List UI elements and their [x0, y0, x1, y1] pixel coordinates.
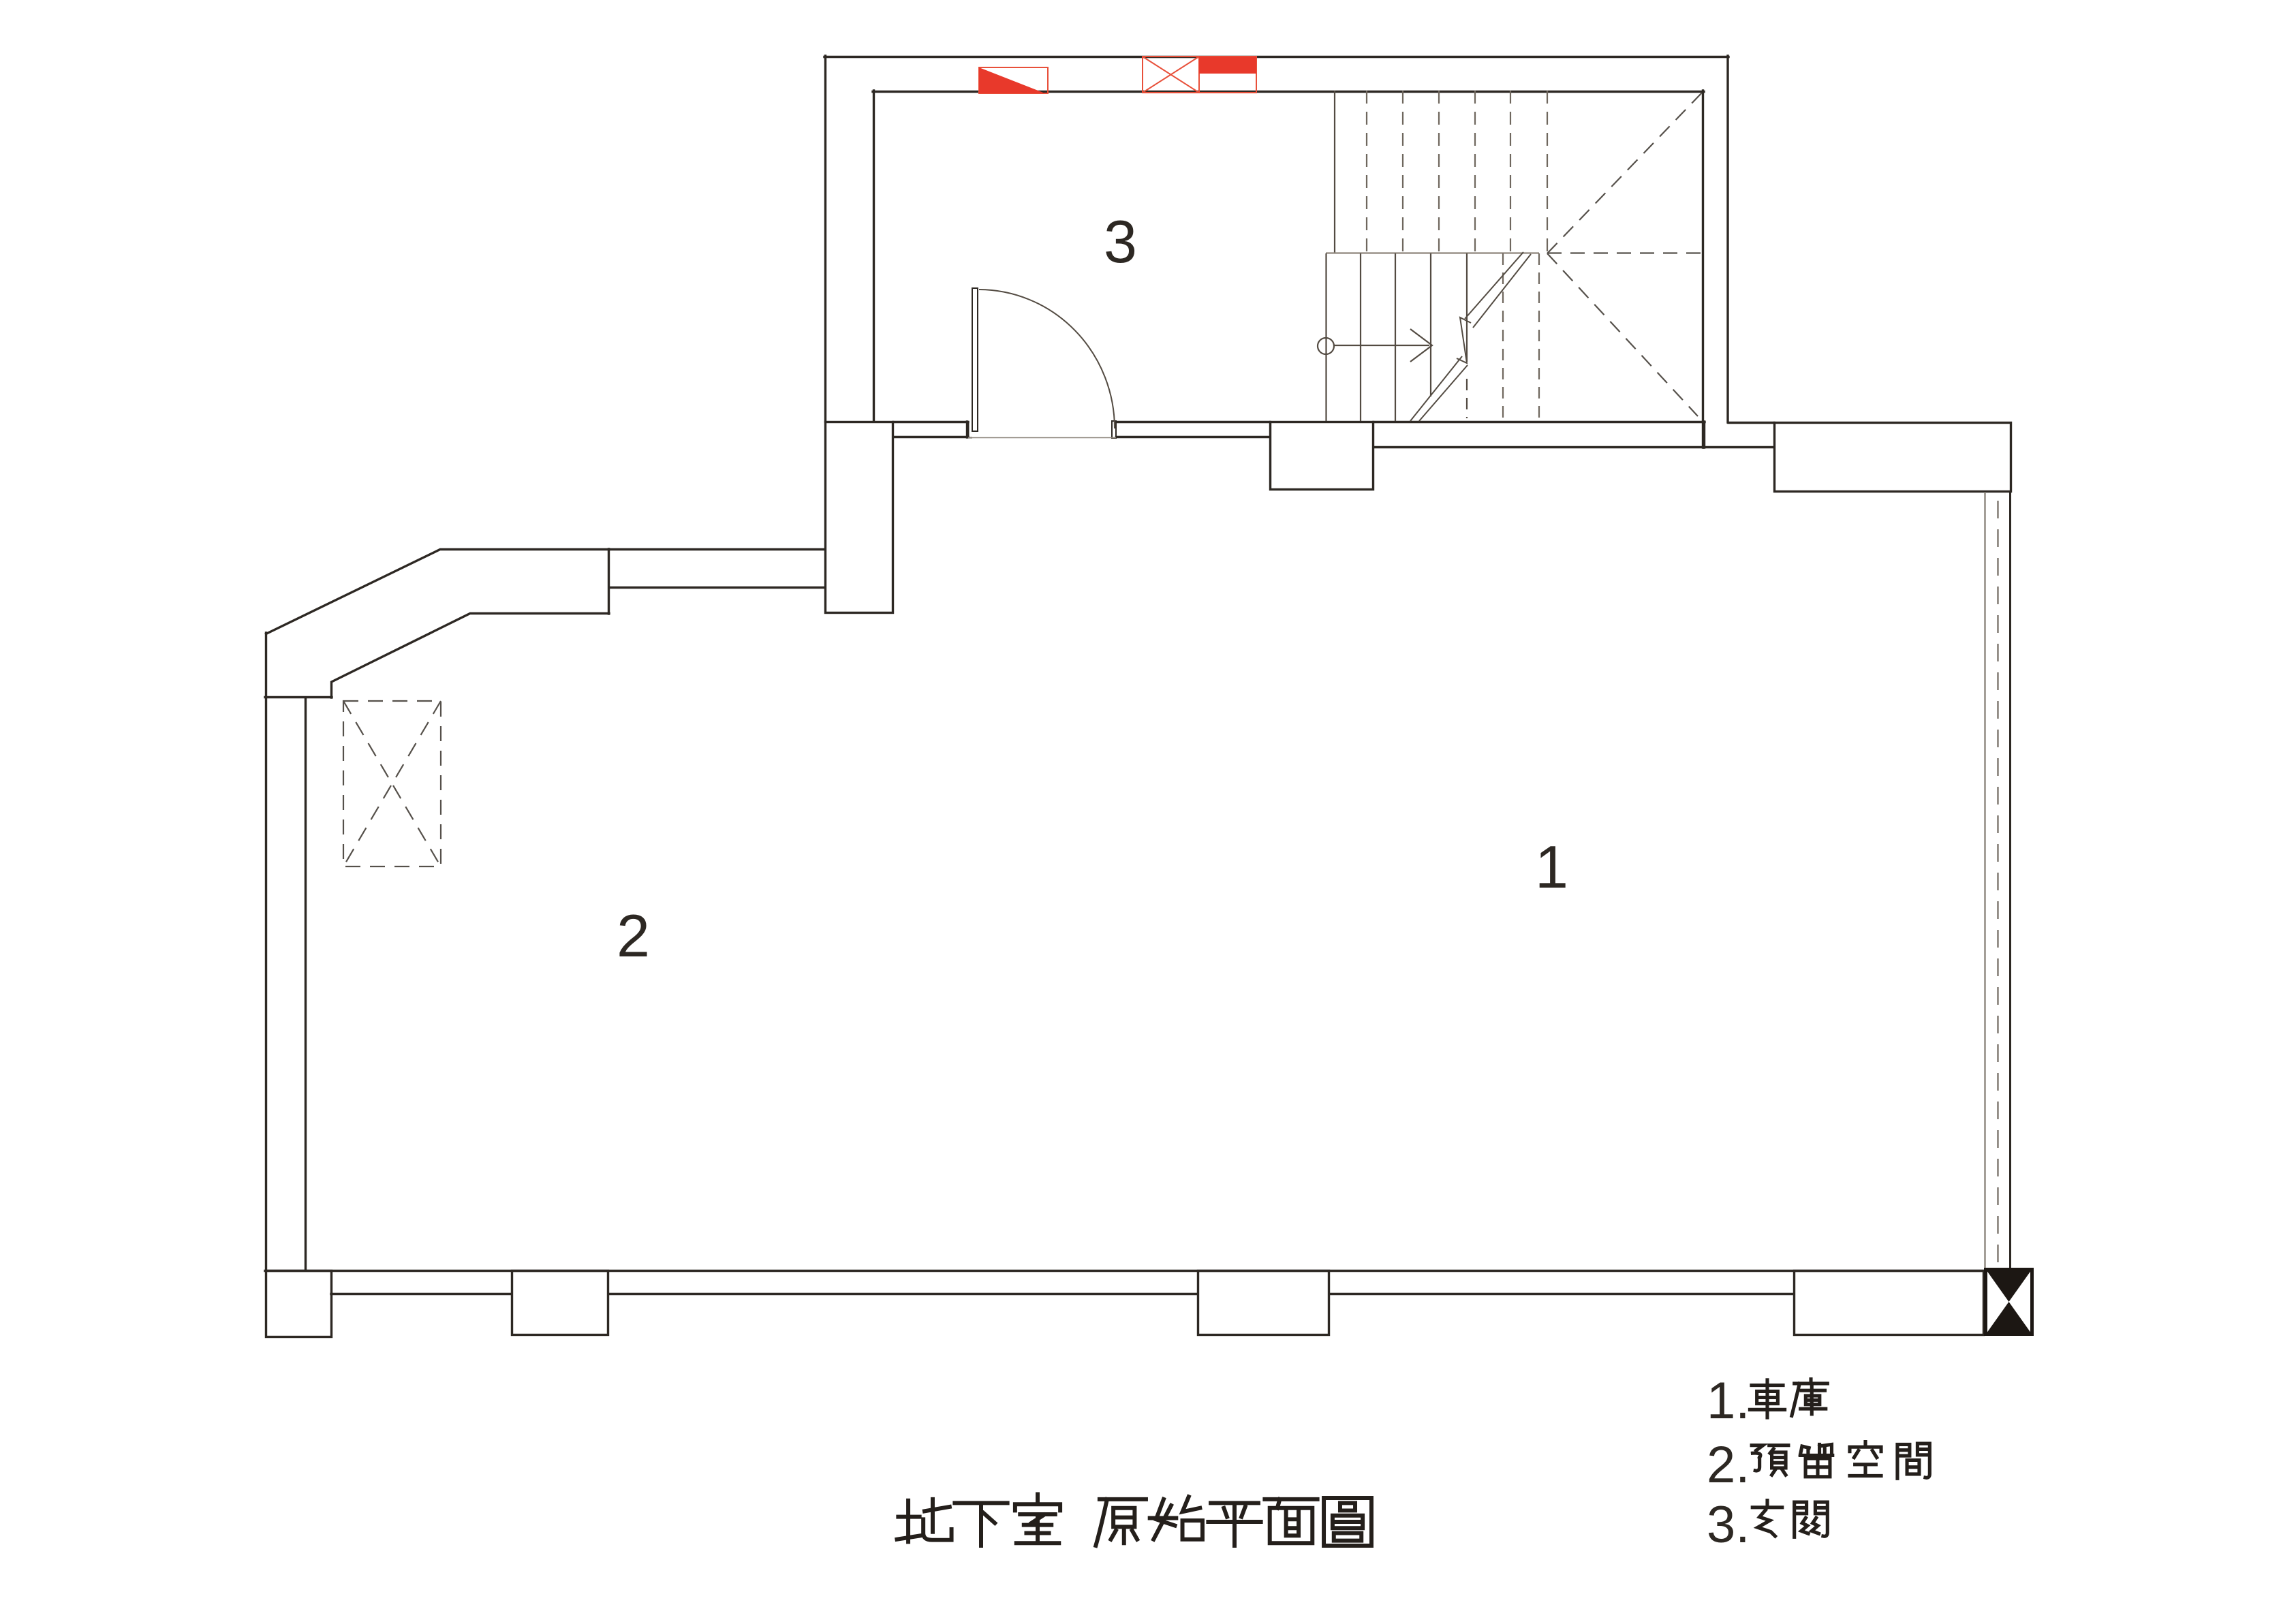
svg-text:1.: 1. — [1707, 1372, 1750, 1430]
svg-text:2.: 2. — [1707, 1436, 1750, 1494]
svg-text:3: 3 — [1104, 208, 1137, 275]
svg-text:1: 1 — [1535, 833, 1568, 901]
svg-text:2: 2 — [617, 902, 650, 969]
svg-text:3.: 3. — [1707, 1496, 1750, 1554]
